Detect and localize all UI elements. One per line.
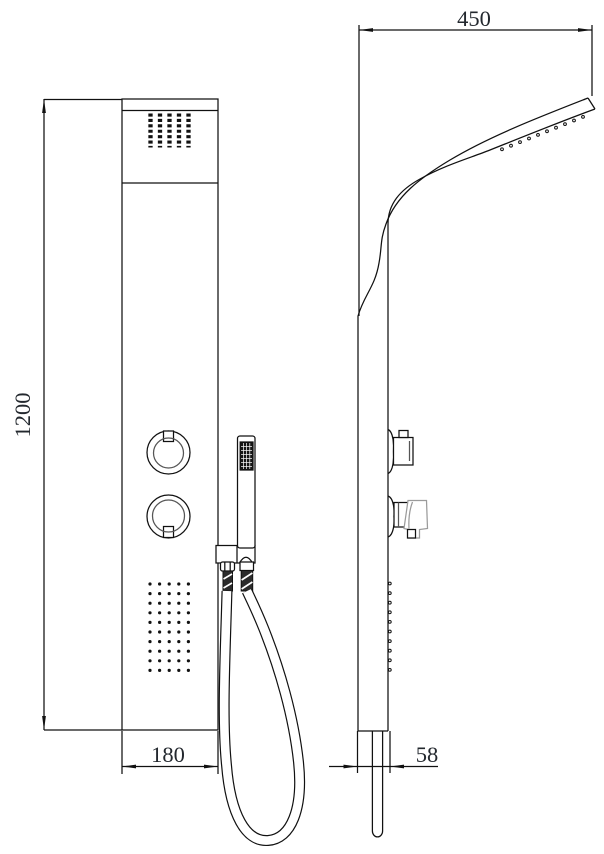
jet-dot — [187, 611, 190, 614]
jet-dot — [158, 611, 161, 614]
jet-dot — [177, 650, 180, 653]
jet-dot — [148, 659, 151, 662]
hose-connector-right — [240, 562, 254, 591]
jet-dot — [158, 582, 161, 585]
hand-shower-wand — [238, 436, 256, 548]
jet-dot — [148, 650, 151, 653]
jet-dot — [564, 123, 567, 126]
jet-dot — [573, 119, 576, 122]
jet-dot — [168, 669, 171, 672]
jet-dot — [168, 640, 171, 643]
jet-dot — [158, 602, 161, 605]
jet-dot — [187, 669, 190, 672]
dimension-width-label: 180 — [151, 742, 185, 767]
jet-dot — [177, 582, 180, 585]
jet-dot — [148, 592, 151, 595]
jet-dot — [388, 582, 391, 585]
jet-dot — [388, 592, 391, 595]
jet-dot — [177, 602, 180, 605]
jet-dot — [187, 621, 190, 624]
hose-connector-left — [221, 562, 235, 591]
jet-dot — [187, 659, 190, 662]
panel-front-outline — [122, 99, 218, 730]
dimension-thickness-label: 58 — [416, 742, 439, 767]
jet-dot — [187, 640, 190, 643]
jet-dot — [148, 669, 151, 672]
jet-dot — [177, 659, 180, 662]
jet-dot — [501, 148, 504, 151]
jet-dot — [388, 659, 391, 662]
overhead-nozzle-dots — [501, 116, 585, 151]
jet-dot — [510, 144, 513, 147]
jet-dot — [528, 137, 531, 140]
lever-tab — [408, 530, 416, 539]
jet-dot — [158, 592, 161, 595]
jet-dot — [187, 650, 190, 653]
jet-dot — [158, 640, 161, 643]
jet-dot — [177, 640, 180, 643]
jet-dot — [158, 659, 161, 662]
panel-front-profile — [388, 109, 595, 731]
jet-dot — [148, 582, 151, 585]
shower-panel-drawing: 1200 450 180 58 — [0, 0, 604, 854]
dimension-depth-450 — [359, 25, 592, 316]
jet-dot — [158, 650, 161, 653]
jet-dot — [555, 126, 558, 129]
jet-dot — [177, 592, 180, 595]
jet-dot — [148, 621, 151, 624]
head-end-edge — [588, 98, 595, 109]
dimension-depth-label: 450 — [457, 6, 491, 31]
jet-dot — [388, 630, 391, 633]
jet-dot — [546, 130, 549, 133]
jet-dot — [537, 134, 540, 137]
dimension-height-label: 1200 — [10, 393, 35, 438]
side-knob-bottom — [388, 496, 428, 538]
side-knob-top — [388, 430, 413, 474]
jet-dot — [187, 602, 190, 605]
jet-dot — [187, 630, 190, 633]
side-view — [358, 98, 595, 837]
front-view — [122, 99, 300, 841]
jet-dot — [148, 611, 151, 614]
shower-hose — [224, 591, 299, 841]
jet-dot — [158, 630, 161, 633]
panel-back-profile — [358, 98, 588, 731]
supply-tube — [372, 731, 382, 837]
jet-dot — [388, 669, 391, 672]
jet-dot — [168, 659, 171, 662]
jet-dot — [168, 630, 171, 633]
dimension-height-1200 — [42, 99, 122, 730]
jet-dot — [158, 621, 161, 624]
jet-dot — [168, 582, 171, 585]
jet-dot — [187, 592, 190, 595]
jet-dot — [388, 611, 391, 614]
jet-dot — [177, 621, 180, 624]
jet-dot — [388, 640, 391, 643]
jet-dot — [582, 116, 585, 119]
jet-dot — [168, 621, 171, 624]
jet-dot — [168, 650, 171, 653]
jet-dot — [148, 602, 151, 605]
jet-dot — [168, 602, 171, 605]
jet-dot — [187, 582, 190, 585]
jet-dot — [388, 621, 391, 624]
jet-dot — [177, 611, 180, 614]
technical-drawing-canvas: 1200 450 180 58 — [0, 0, 604, 854]
jet-dot — [388, 649, 391, 652]
jet-dot — [177, 630, 180, 633]
jet-dot — [519, 141, 522, 144]
jet-dot — [148, 630, 151, 633]
jet-dot — [177, 669, 180, 672]
jet-dot — [168, 611, 171, 614]
jet-dot — [168, 592, 171, 595]
jet-dot — [388, 601, 391, 604]
jet-dot — [158, 669, 161, 672]
jet-dot — [148, 640, 151, 643]
side-jet-dots — [388, 582, 391, 671]
